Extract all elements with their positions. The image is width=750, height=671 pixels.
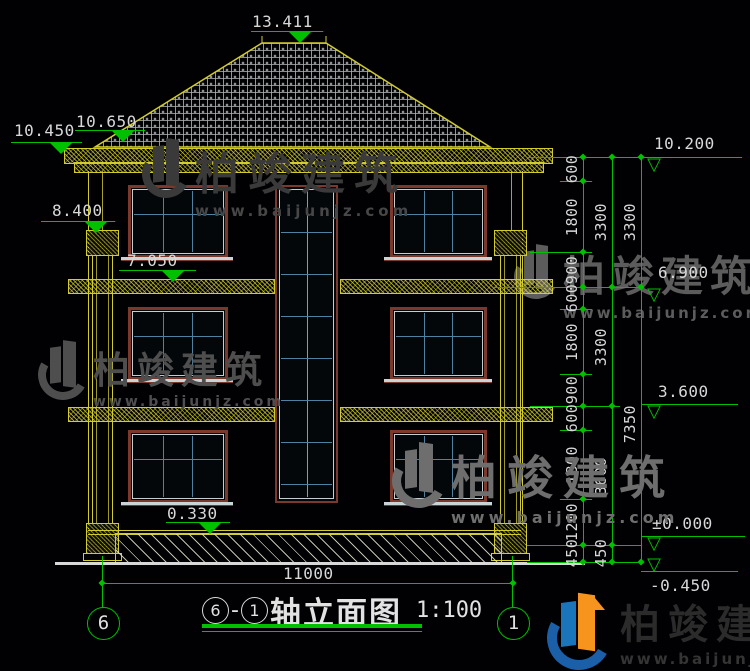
left-column-capital <box>86 230 119 256</box>
elevation-open-triangle: ▽ <box>643 537 665 550</box>
elevation-label-floor3-band: 7.050 <box>127 251 178 270</box>
dim-value: 450 <box>592 539 610 568</box>
elevation-triangle <box>289 32 311 43</box>
watermark-website: www.baijunjz.com <box>451 508 678 527</box>
dim-value: 600 <box>563 404 581 433</box>
elevation-label-r1: 10.200 <box>654 134 715 153</box>
elevation-open-triangle: ▽ <box>643 405 665 418</box>
title-axis-end: 1 <box>241 597 268 624</box>
window-sill <box>384 257 492 261</box>
watermark-center-low: 柏竣建筑 www.baijunjz.com <box>392 442 678 527</box>
elevation-line <box>251 31 323 32</box>
elevation-label-r2: 6.900 <box>658 263 709 282</box>
brand-logo: 柏竣建筑 www.baijunjz.com <box>545 592 750 668</box>
elevation-line <box>75 130 145 131</box>
baijun-logo-icon <box>392 442 442 506</box>
plinth-hatch-band <box>115 533 502 563</box>
dim-value: 450 <box>563 539 581 568</box>
axis-bubble-left: 6 <box>87 607 120 640</box>
dim-value: 3300 <box>592 328 610 366</box>
title-separator: - <box>231 598 239 623</box>
baijun-logo-color-icon <box>545 592 611 662</box>
elevation-triangle <box>85 222 107 233</box>
dim-value: 900 <box>563 376 581 405</box>
dim-value: 3300 <box>621 203 639 241</box>
title-axis-start: 6 <box>202 597 229 624</box>
elevation-triangle <box>50 143 72 154</box>
dim-value: 7350 <box>621 405 639 443</box>
watermark-top: 柏竣建筑 www.baijunjz.com <box>142 138 412 220</box>
elevation-open-triangle: ▽ <box>643 558 665 571</box>
elevation-label-r3: 3.600 <box>658 382 709 401</box>
stairwell-window <box>275 185 338 503</box>
dim-value: 900 <box>563 256 581 285</box>
elevation-triangle <box>162 271 184 282</box>
right-column-capital <box>494 230 527 256</box>
dim-line-total-width <box>102 583 513 584</box>
window-f1-left <box>128 430 228 503</box>
belt-band-3600-right <box>340 407 553 422</box>
dim-value: 3300 <box>592 203 610 241</box>
watermark-left-middle: 柏竣建筑 www.baijunjz.com <box>38 340 284 410</box>
title-underline-thin <box>202 631 422 632</box>
axis-bubble-right: 1 <box>497 607 530 640</box>
watermark-company: 柏竣建筑 <box>93 340 284 394</box>
elevation-label-plinth: 0.330 <box>167 504 218 523</box>
dim-value: 600 <box>563 155 581 184</box>
brand-website: www.baijunjz.com <box>620 650 750 668</box>
elevation-line <box>119 270 196 271</box>
watermark-company: 柏竣建筑 <box>451 442 678 508</box>
cad-elevation-drawing: 柏竣建筑 www.baijunjz.com <box>0 0 750 671</box>
elevation-triangle <box>112 131 134 142</box>
dim-value: 1800 <box>563 198 581 236</box>
brand-company: 柏竣建筑 <box>620 592 750 650</box>
elevation-open-triangle: ▽ <box>643 158 665 171</box>
dim-total-width: 11000 <box>283 564 334 583</box>
watermark-website: www.baijunjz.com <box>93 394 284 410</box>
watermark-website: www.baijunjz.com <box>195 202 412 220</box>
baijun-logo-icon <box>38 340 84 400</box>
window-f2-right <box>390 307 487 380</box>
axis-stub-right <box>511 171 512 230</box>
elevation-open-triangle: ▽ <box>643 288 665 301</box>
elevation-label-eave-high: 10.650 <box>76 112 137 131</box>
title-underline-thick <box>202 624 422 628</box>
dim-value: 600 <box>563 284 581 313</box>
elevation-label-roof-top: 13.411 <box>252 12 313 31</box>
elevation-label-eave-low: 10.450 <box>14 121 75 140</box>
window-sill <box>384 379 492 383</box>
elevation-triangle <box>199 523 221 534</box>
watermark-company: 柏竣建筑 <box>195 138 412 202</box>
dim-value: 1800 <box>563 323 581 361</box>
elevation-label-capital: 8.400 <box>52 201 103 220</box>
title-scale: 1:100 <box>416 598 482 623</box>
baijun-logo-icon <box>142 138 186 200</box>
